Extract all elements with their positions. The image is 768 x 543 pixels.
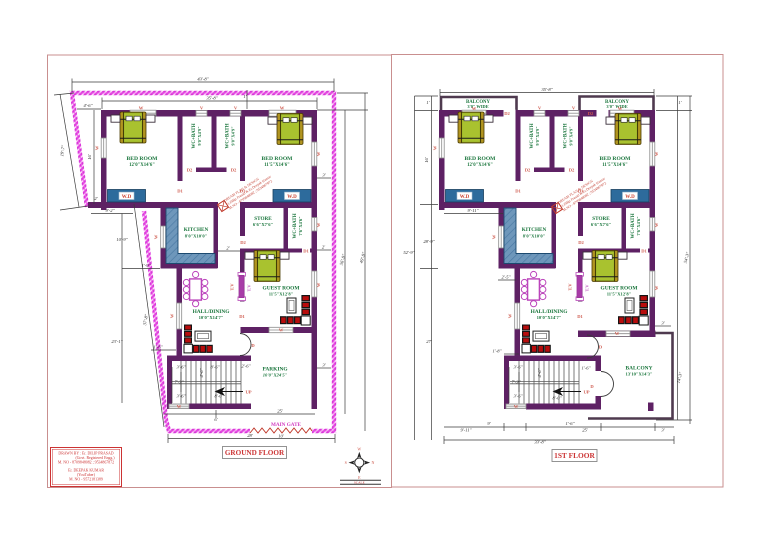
svg-text:2'-5": 2'-5" — [501, 275, 510, 280]
svg-text:W: W — [154, 234, 159, 239]
svg-text:W: W — [170, 313, 175, 318]
svg-text:M. NO - 9572181389: M. NO - 9572181389 — [69, 478, 103, 482]
svg-text:9'-11": 9'-11" — [468, 208, 479, 213]
svg-text:11'5"X14'6": 11'5"X14'6" — [602, 163, 628, 168]
svg-text:UP: UP — [245, 390, 251, 395]
svg-text:35'-8": 35'-8" — [206, 96, 217, 101]
svg-text:KITCHEN: KITCHEN — [184, 227, 209, 233]
svg-text:33'-8": 33'-8" — [534, 440, 545, 445]
svg-text:7'6"X4'6": 7'6"X4'6" — [298, 216, 303, 235]
svg-text:35'-8": 35'-8" — [541, 87, 552, 92]
svg-text:9'0"X4'9": 9'0"X4'9" — [535, 126, 540, 145]
svg-text:M. NO - 8709848082 ; 953486787: M. NO - 8709848082 ; 9534867872 — [58, 461, 114, 465]
svg-text:D1: D1 — [303, 249, 309, 254]
svg-text:W: W — [654, 285, 659, 290]
svg-text:11'5"X12'8": 11'5"X12'8" — [269, 292, 294, 297]
svg-text:S: S — [345, 460, 347, 465]
svg-text:BED ROOM: BED ROOM — [127, 156, 159, 162]
svg-text:W: W — [618, 106, 623, 111]
svg-text:1'-6": 1'-6" — [565, 421, 574, 426]
svg-text:4'-6": 4'-6" — [83, 103, 92, 108]
svg-text:(YouTuber): (YouTuber) — [77, 473, 96, 477]
svg-text:52'-9": 52'-9" — [403, 250, 414, 255]
svg-text:9'-11": 9'-11" — [461, 428, 472, 433]
svg-text:9'0"X4'9": 9'0"X4'9" — [569, 126, 574, 145]
svg-text:W: W — [316, 151, 321, 156]
svg-text:43'-8": 43'-8" — [197, 77, 208, 82]
svg-text:W: W — [280, 105, 285, 110]
svg-text:10'0"X14'7": 10'0"X14'7" — [199, 315, 224, 320]
svg-text:3'-6": 3'-6" — [176, 365, 185, 370]
svg-text:D2: D2 — [569, 168, 575, 173]
svg-text:T.V: T.V — [585, 284, 590, 292]
svg-text:9'-2": 9'-2" — [105, 208, 114, 213]
svg-text:10'0"X14'7": 10'0"X14'7" — [537, 315, 562, 320]
svg-text:T.V: T.V — [230, 283, 235, 291]
svg-text:W: W — [472, 106, 477, 111]
svg-text:N: N — [372, 460, 375, 465]
svg-text:8'-0": 8'-0" — [214, 394, 223, 399]
svg-text:3'-6": 3'-6" — [176, 394, 185, 399]
svg-text:W: W — [316, 222, 321, 227]
svg-text:1ST FLOOR: 1ST FLOOR — [554, 451, 595, 460]
svg-text:W: W — [357, 447, 361, 452]
svg-text:10'0"X24'5": 10'0"X24'5" — [263, 373, 288, 378]
svg-text:W: W — [508, 313, 513, 318]
svg-text:W: W — [177, 404, 182, 409]
svg-text:D2: D2 — [578, 240, 584, 245]
svg-text:9'0"X4'9": 9'0"X4'9" — [197, 126, 202, 145]
svg-text:8'-6": 8'-6" — [210, 365, 219, 370]
svg-text:BED ROOM: BED ROOM — [600, 156, 632, 162]
svg-text:28'-9": 28'-9" — [423, 239, 434, 244]
svg-text:W: W — [514, 404, 519, 409]
svg-text:11'5"X12'8": 11'5"X12'8" — [607, 292, 632, 297]
svg-text:4'-6": 4'-6" — [199, 368, 204, 377]
svg-text:3'-6": 3'-6" — [513, 394, 522, 399]
svg-text:D2: D2 — [240, 240, 246, 245]
svg-text:W: W — [279, 328, 284, 333]
svg-text:1'-6": 1'-6" — [581, 366, 590, 371]
svg-text:BED ROOM: BED ROOM — [262, 156, 294, 162]
svg-text:23'-1": 23'-1" — [111, 339, 122, 344]
svg-text:12'0"X14'6": 12'0"X14'6" — [467, 163, 493, 168]
svg-text:1'-8": 1'-8" — [492, 349, 501, 354]
svg-text:D1: D1 — [177, 189, 183, 194]
svg-text:7'-3": 7'-3" — [511, 380, 520, 385]
svg-text:D2: D2 — [588, 111, 594, 116]
svg-text:1'-6": 1'-6" — [153, 345, 162, 350]
svg-text:W: W — [654, 222, 659, 227]
svg-text:D2: D2 — [231, 168, 237, 173]
svg-text:8'0"X10'0": 8'0"X10'0" — [185, 234, 208, 239]
svg-text:D1: D1 — [577, 314, 583, 319]
svg-text:11'5"X14'6": 11'5"X14'6" — [264, 163, 290, 168]
svg-text:KITCHEN: KITCHEN — [522, 227, 547, 233]
svg-text:3'-6": 3'-6" — [513, 365, 522, 370]
svg-text:SCALE: SCALE — [354, 481, 365, 485]
svg-text:T.V: T.V — [247, 284, 252, 292]
svg-text:GROUND FLOOR: GROUND FLOOR — [225, 449, 285, 457]
svg-text:D2: D2 — [187, 168, 193, 173]
svg-text:W: W — [615, 331, 620, 336]
svg-text:7'6"X4'6": 7'6"X4'6" — [636, 216, 641, 235]
svg-text:(Govt. Registered Engg.): (Govt. Registered Engg.) — [75, 456, 115, 460]
svg-text:10'-9": 10'-9" — [116, 237, 127, 242]
svg-text:MAIN GATE: MAIN GATE — [271, 422, 302, 428]
svg-text:D1: D1 — [239, 314, 245, 319]
svg-text:T.V: T.V — [568, 283, 573, 291]
svg-text:BED ROOM: BED ROOM — [465, 156, 497, 162]
svg-text:D1: D1 — [641, 249, 647, 254]
svg-text:7'-3": 7'-3" — [174, 380, 183, 385]
svg-text:6'6"X7'6": 6'6"X7'6" — [591, 222, 612, 227]
svg-text:D1: D1 — [515, 189, 521, 194]
svg-text:DRAWN BY : Er. DILIP PRASAD: DRAWN BY : Er. DILIP PRASAD — [58, 452, 113, 456]
svg-text:1'-9": 1'-9" — [141, 263, 150, 268]
svg-text:W: W — [433, 145, 438, 150]
svg-text:9'0"X4'9": 9'0"X4'9" — [231, 126, 236, 145]
svg-text:4'-6": 4'-6" — [537, 368, 542, 377]
svg-text:3'0" WIDE: 3'0" WIDE — [467, 104, 488, 109]
svg-text:UP: UP — [583, 390, 589, 395]
svg-text:2'-6": 2'-6" — [241, 364, 250, 369]
svg-text:8'-0": 8'-0" — [552, 396, 561, 401]
svg-text:D2: D2 — [525, 168, 531, 173]
svg-text:W: W — [492, 234, 497, 239]
svg-text:W: W — [95, 145, 100, 150]
svg-text:8'0"X10'0": 8'0"X10'0" — [523, 234, 546, 239]
svg-text:D2: D2 — [504, 111, 510, 116]
svg-text:6'6"X7'6": 6'6"X7'6" — [253, 222, 274, 227]
svg-text:13'10"X14'3": 13'10"X14'3" — [625, 372, 652, 377]
svg-text:W: W — [139, 105, 144, 110]
svg-text:W: W — [316, 282, 321, 287]
svg-text:Er. DEEPAK KUMAR: Er. DEEPAK KUMAR — [68, 469, 104, 473]
svg-text:12'0"X14'6": 12'0"X14'6" — [129, 163, 155, 168]
svg-text:W: W — [654, 151, 659, 156]
